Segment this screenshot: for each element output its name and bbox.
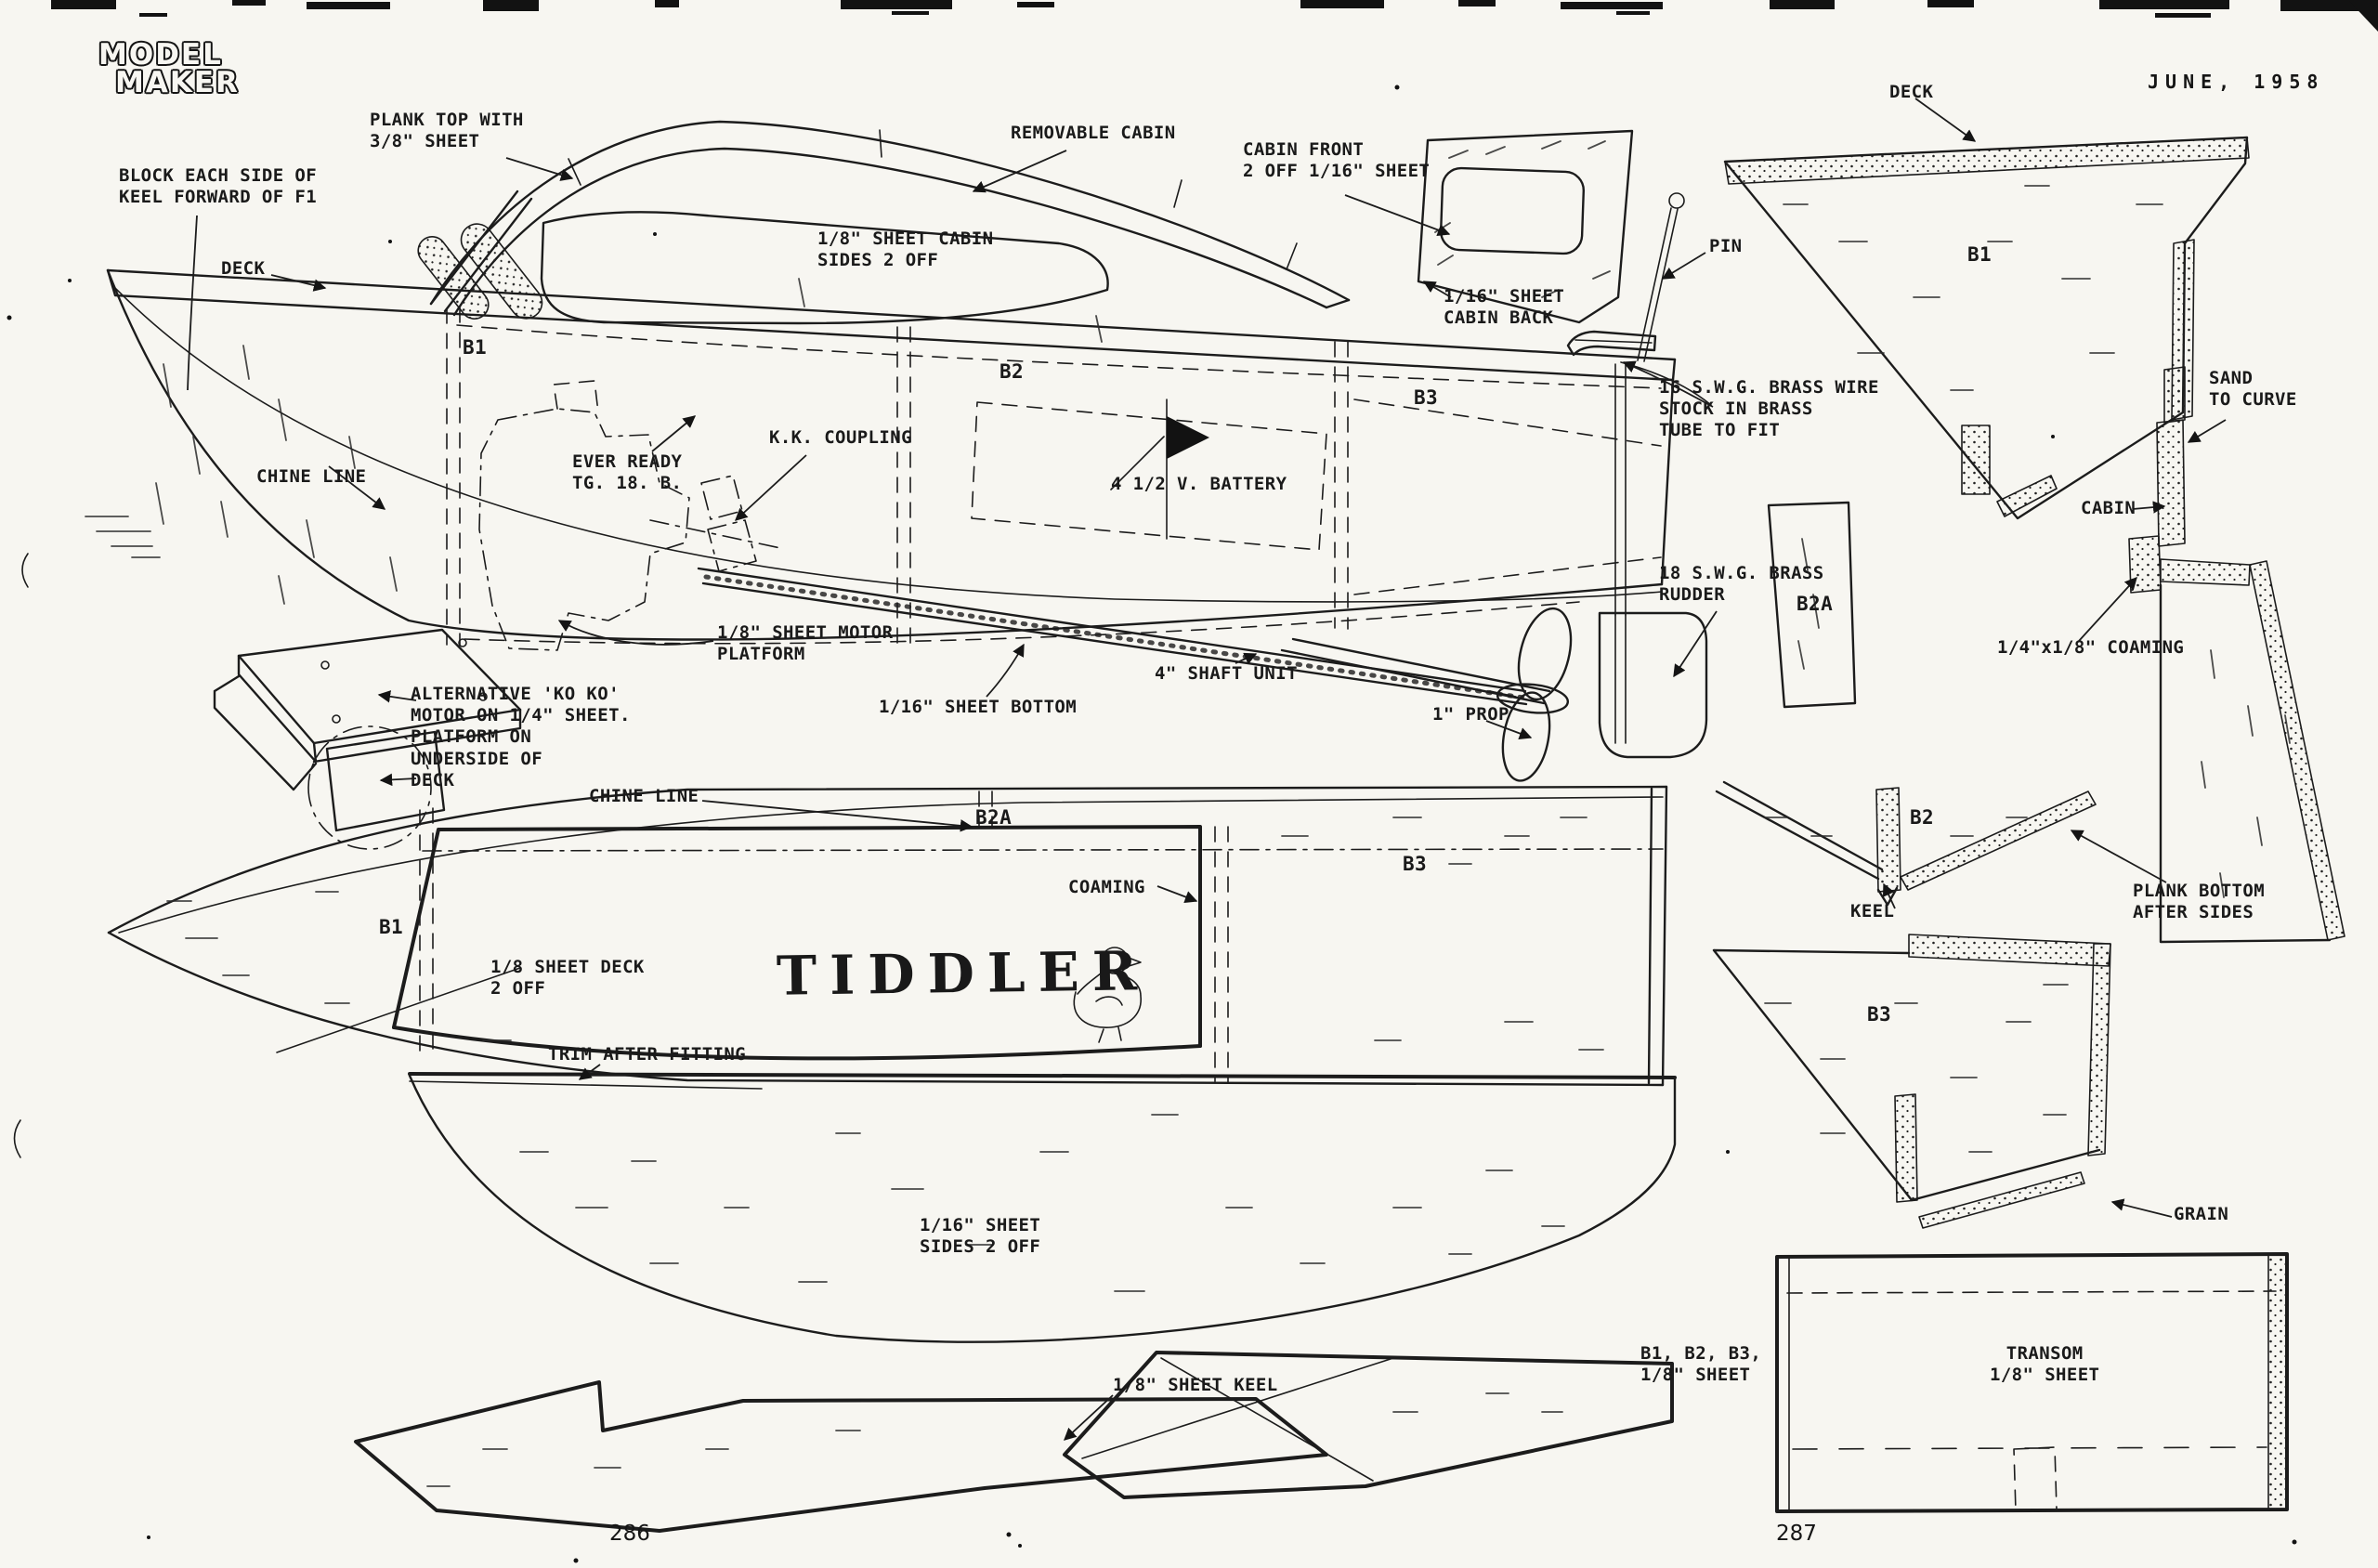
label-deck-side: DECK: [221, 258, 265, 280]
label-alt-motor: ALTERNATIVE 'KO KO' MOTOR ON 1/4" SHEET.…: [411, 684, 631, 791]
label-b2a-plan: B2A: [975, 806, 1012, 830]
label-b2-pattern: B2: [1910, 806, 1934, 830]
label-shaft-unit: 4" SHAFT UNIT: [1155, 663, 1298, 685]
label-kk-coupling: K.K. COUPLING: [769, 427, 912, 449]
label-sheet-deck: 1/8 SHEET DECK 2 OFF: [490, 957, 645, 1000]
label-b1-plan: B1: [379, 916, 403, 940]
label-removable-cabin: REMOVABLE CABIN: [1011, 123, 1176, 144]
magazine-logo-line2: MAKER: [115, 69, 240, 97]
issue-date: JUNE, 1958: [2148, 71, 2324, 93]
label-chine-line-side: CHINE LINE: [256, 466, 366, 488]
label-cabin-sides: 1/8" SHEET CABIN SIDES 2 OFF: [817, 229, 993, 271]
label-b1-side: B1: [463, 336, 487, 360]
magazine-logo-line1: MODEL: [98, 41, 240, 69]
label-sheet-keel: 1/8" SHEET KEEL: [1113, 1375, 1278, 1396]
boat-name-logo: TIDDLER: [777, 939, 1151, 1008]
label-coaming-plan: COAMING: [1068, 877, 1145, 898]
label-plank-top: PLANK TOP WITH 3/8" SHEET: [370, 110, 524, 152]
label-cabin-back: 1/16" SHEET CABIN BACK: [1444, 286, 1564, 329]
magazine-plan-page: MODEL MAKER JUNE, 1958 286 287 TIDDLER P…: [0, 0, 2378, 1568]
magazine-logo: MODEL MAKER: [98, 41, 240, 98]
label-b123-sheet: B1, B2, B3, 1/8" SHEET: [1640, 1343, 1761, 1386]
label-ever-ready: EVER READY TG. 18. B.: [572, 451, 682, 494]
page-number-right: 287: [1776, 1522, 1817, 1546]
label-b3-side: B3: [1414, 386, 1438, 411]
label-pin: PIN: [1709, 236, 1743, 257]
label-b3-plan: B3: [1403, 853, 1427, 877]
label-transom: TRANSOM 1/8" SHEET: [1990, 1343, 2099, 1386]
label-b2a-pattern: B2A: [1797, 593, 1833, 617]
label-motor-platform: 1/8" SHEET MOTOR PLATFORM: [717, 622, 893, 665]
side-view-hull: [85, 122, 1711, 784]
label-block-keel: BLOCK EACH SIDE OF KEEL FORWARD OF F1: [119, 165, 317, 208]
label-sheet-bottom: 1/16" SHEET BOTTOM: [879, 697, 1077, 718]
label-keel: KEEL: [1850, 901, 1894, 922]
label-trim-after-fitting: TRIM AFTER FITTING: [548, 1044, 746, 1065]
label-prop: 1" PROP: [1432, 704, 1509, 725]
label-sheet-sides: 1/16" SHEET SIDES 2 OFF: [920, 1215, 1040, 1258]
label-brass-wire: 16 S.W.G. BRASS WIRE STOCK IN BRASS TUBE…: [1659, 377, 1879, 442]
label-battery: 4 1/2 V. BATTERY: [1111, 474, 1287, 495]
side-sheet-pattern: [410, 1074, 1675, 1342]
label-deck-pattern: DECK: [1889, 82, 1933, 103]
label-chine-line-plan: CHINE LINE: [589, 786, 699, 807]
label-b1-pattern: B1: [1967, 243, 1992, 268]
boat-plan-linework: [0, 0, 2378, 1568]
label-plank-bottom: PLANK BOTTOM AFTER SIDES: [2133, 881, 2265, 923]
label-b2-side: B2: [1000, 360, 1024, 385]
bulkhead-b3-pattern: [1714, 934, 2110, 1228]
plan-view-hull: [109, 787, 1666, 1085]
label-coaming-section: 1/4"x1/8" COAMING: [1997, 637, 2184, 659]
page-number-left: 286: [609, 1522, 650, 1546]
label-sand-to-curve: SAND TO CURVE: [2209, 368, 2297, 411]
label-cabin-section: CABIN: [2081, 498, 2136, 519]
label-cabin-front: CABIN FRONT 2 OFF 1/16" SHEET: [1243, 139, 1430, 182]
label-b3-pattern: B3: [1867, 1003, 1891, 1027]
keel-sheet-patterns: [356, 1352, 1672, 1531]
bulkhead-b2-pattern: [1717, 782, 2096, 905]
label-grain: GRAIN: [2174, 1204, 2228, 1225]
